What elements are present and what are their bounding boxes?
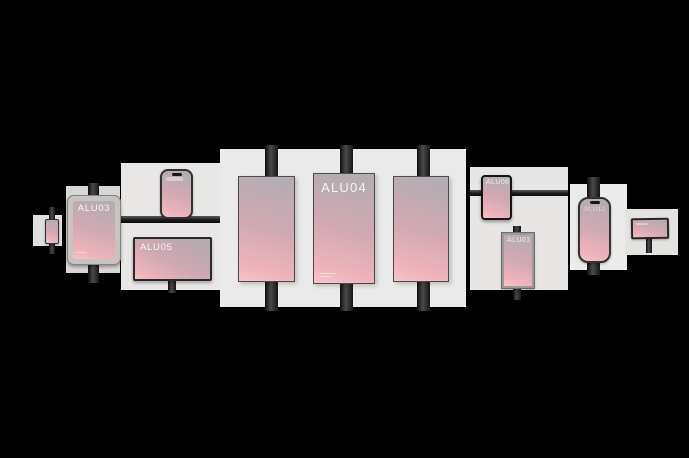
tablet-alu06-label: ALU06: [483, 177, 510, 186]
phone-right-device: ALU12: [578, 197, 611, 263]
monitor-alu05-label: ALU05: [135, 239, 210, 253]
poster-right-device: [393, 176, 449, 282]
poster-alu01-label: ALU01: [504, 235, 532, 244]
poster-center-device: ALU04: [313, 173, 375, 284]
tablet-alu06-device: ALU06: [481, 175, 512, 220]
poster-center-label: ALU04: [314, 174, 374, 195]
poster-center-fineprint-1: [320, 273, 336, 274]
poster-alu01-device: ALU01: [502, 233, 534, 288]
tablet-alu03-label: ALU03: [73, 201, 115, 214]
poster-left-device: [238, 176, 295, 282]
tablet-alu03-fineprint: [77, 252, 86, 253]
phone-left-label-faint: [166, 177, 183, 181]
monitor-alu05-device: ALU05: [133, 237, 212, 281]
poster-center-fineprint-2: [320, 276, 331, 277]
phone-left-dynamic-island: [172, 173, 182, 176]
sign-right-label-faint: [636, 223, 648, 225]
phone-right-dynamic-island: [590, 201, 600, 204]
mini-phone-device: [45, 219, 59, 244]
sign-right-device: [631, 218, 669, 240]
phone-left-device: [160, 169, 193, 219]
tablet-alu03-screen: ALU03: [73, 201, 115, 259]
tablet-alu03-frame: ALU03: [67, 195, 121, 265]
mockup-wall-scene: ALU03 ALU05 ALU04 ALU06 ALU01 ALU12: [0, 0, 689, 458]
